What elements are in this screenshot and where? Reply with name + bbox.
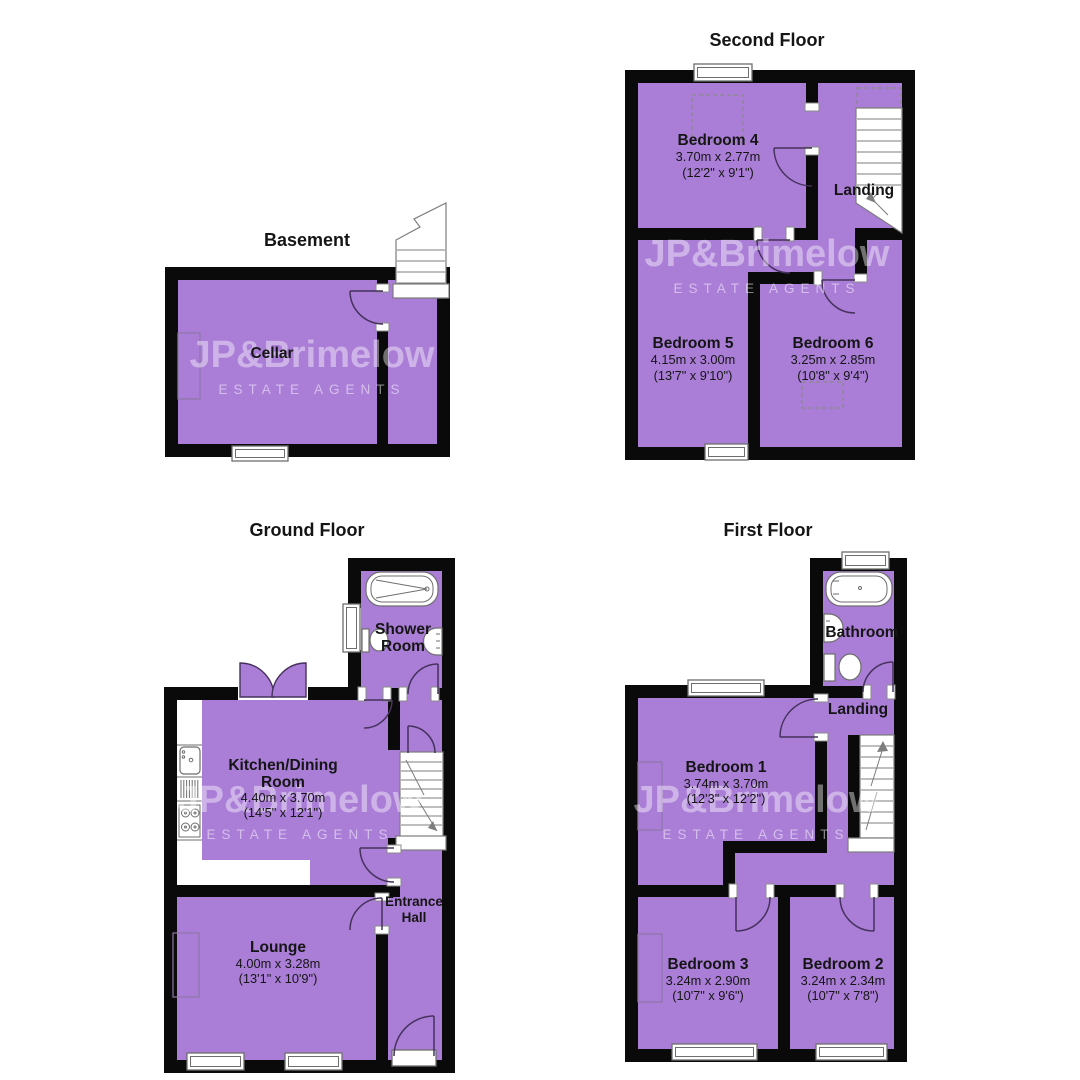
- lounge-dims-imperial: (13'1" x 10'9"): [239, 971, 318, 986]
- kitchen-label-2: Room: [261, 774, 305, 791]
- basement-plan: Basement: [165, 203, 450, 461]
- kitchen-sink-icon: [180, 747, 200, 774]
- bedroom4-dims-metric: 3.70m x 2.77m: [676, 149, 761, 164]
- svg-text:ESTATE AGENTS: ESTATE AGENTS: [662, 827, 849, 842]
- bedroom5-dims-metric: 4.15m x 3.00m: [651, 352, 736, 367]
- basement-title: Basement: [264, 230, 350, 250]
- bedroom3-dims-metric: 3.24m x 2.90m: [666, 973, 751, 988]
- watermark-basement: JP&Brimelow ESTATE AGENTS: [190, 334, 435, 397]
- cellar-label: Cellar: [250, 345, 293, 362]
- shower-room-label-1: Shower: [375, 621, 431, 638]
- svg-text:JP&Brimelow: JP&Brimelow: [190, 334, 435, 376]
- bedroom5-window: [705, 444, 748, 460]
- kitchen-dims-metric: 4.40m x 3.70m: [241, 790, 326, 805]
- second-floor-title: Second Floor: [709, 30, 824, 50]
- lounge-window-1: [187, 1053, 244, 1070]
- bedroom4-window: [694, 64, 752, 81]
- bedroom2-label: Bedroom 2: [803, 956, 884, 973]
- bedroom5-dims-imperial: (13'7" x 9'10"): [654, 368, 733, 383]
- basement-stairs: [393, 203, 449, 298]
- first-floor-title: First Floor: [724, 520, 813, 540]
- lounge-label: Lounge: [250, 939, 306, 956]
- bedroom3-window: [672, 1044, 757, 1060]
- bathroom-label: Bathroom: [825, 624, 898, 641]
- floorplan-page: Basement: [0, 0, 1080, 1080]
- bedroom3-dims-imperial: (10'7" x 9'6"): [672, 988, 744, 1003]
- bedroom6-label: Bedroom 6: [793, 335, 874, 352]
- first-landing-label: Landing: [828, 701, 888, 718]
- cellar-window: [232, 446, 288, 461]
- bedroom6-dims-imperial: (10'8" x 9'4"): [797, 368, 869, 383]
- second-landing-label: Landing: [834, 182, 894, 199]
- first-floor-plan: First Floor: [625, 520, 907, 1062]
- bedroom1-dims-metric: 3.74m x 3.70m: [684, 776, 769, 791]
- bedroom2-window: [816, 1044, 887, 1060]
- svg-text:JP&Brimelow: JP&Brimelow: [645, 233, 890, 275]
- bedroom4-label: Bedroom 4: [678, 132, 759, 149]
- svg-text:ESTATE AGENTS: ESTATE AGENTS: [673, 281, 860, 296]
- bedroom3-label: Bedroom 3: [668, 956, 749, 973]
- kitchen-worktop-strip: [177, 860, 310, 885]
- bedroom5-label: Bedroom 5: [653, 335, 734, 352]
- bedroom1-window: [688, 680, 764, 696]
- svg-text:ESTATE AGENTS: ESTATE AGENTS: [206, 827, 393, 842]
- entrance-hall-label-2: Hall: [402, 910, 427, 925]
- bedroom2-dims-imperial: (10'7" x 7'8"): [807, 988, 879, 1003]
- kitchen-dims-imperial: (14'5" x 12'1"): [244, 805, 323, 820]
- bedroom1-label: Bedroom 1: [686, 759, 767, 776]
- bedroom2-dims-metric: 3.24m x 2.34m: [801, 973, 886, 988]
- bedroom1-dims-imperial: (12'3" x 12'2"): [687, 791, 766, 806]
- shower-room-label-2: Room: [381, 638, 425, 655]
- kitchen-french-doors: [240, 663, 306, 697]
- bathroom-window: [842, 552, 889, 569]
- entrance-hall-label-1: Entrance: [385, 894, 443, 909]
- ground-floor-plan: Ground Floor: [164, 520, 455, 1073]
- svg-text:ESTATE AGENTS: ESTATE AGENTS: [218, 382, 405, 397]
- ground-floor-title: Ground Floor: [250, 520, 365, 540]
- lounge-window-2: [285, 1053, 342, 1070]
- lounge-dims-metric: 4.00m x 3.28m: [236, 956, 321, 971]
- floorplan-drawing: Basement: [0, 0, 1080, 1080]
- toilet-icon: [824, 654, 861, 681]
- bedroom4-dims-imperial: (12'2" x 9'1"): [682, 165, 754, 180]
- watermark-second: JP&Brimelow ESTATE AGENTS: [645, 233, 890, 296]
- shower-room-window: [343, 604, 360, 652]
- bedroom6-dims-metric: 3.25m x 2.85m: [791, 352, 876, 367]
- second-floor-plan: Second Floor: [625, 30, 915, 460]
- kitchen-label-1: Kitchen/Dining: [228, 757, 337, 774]
